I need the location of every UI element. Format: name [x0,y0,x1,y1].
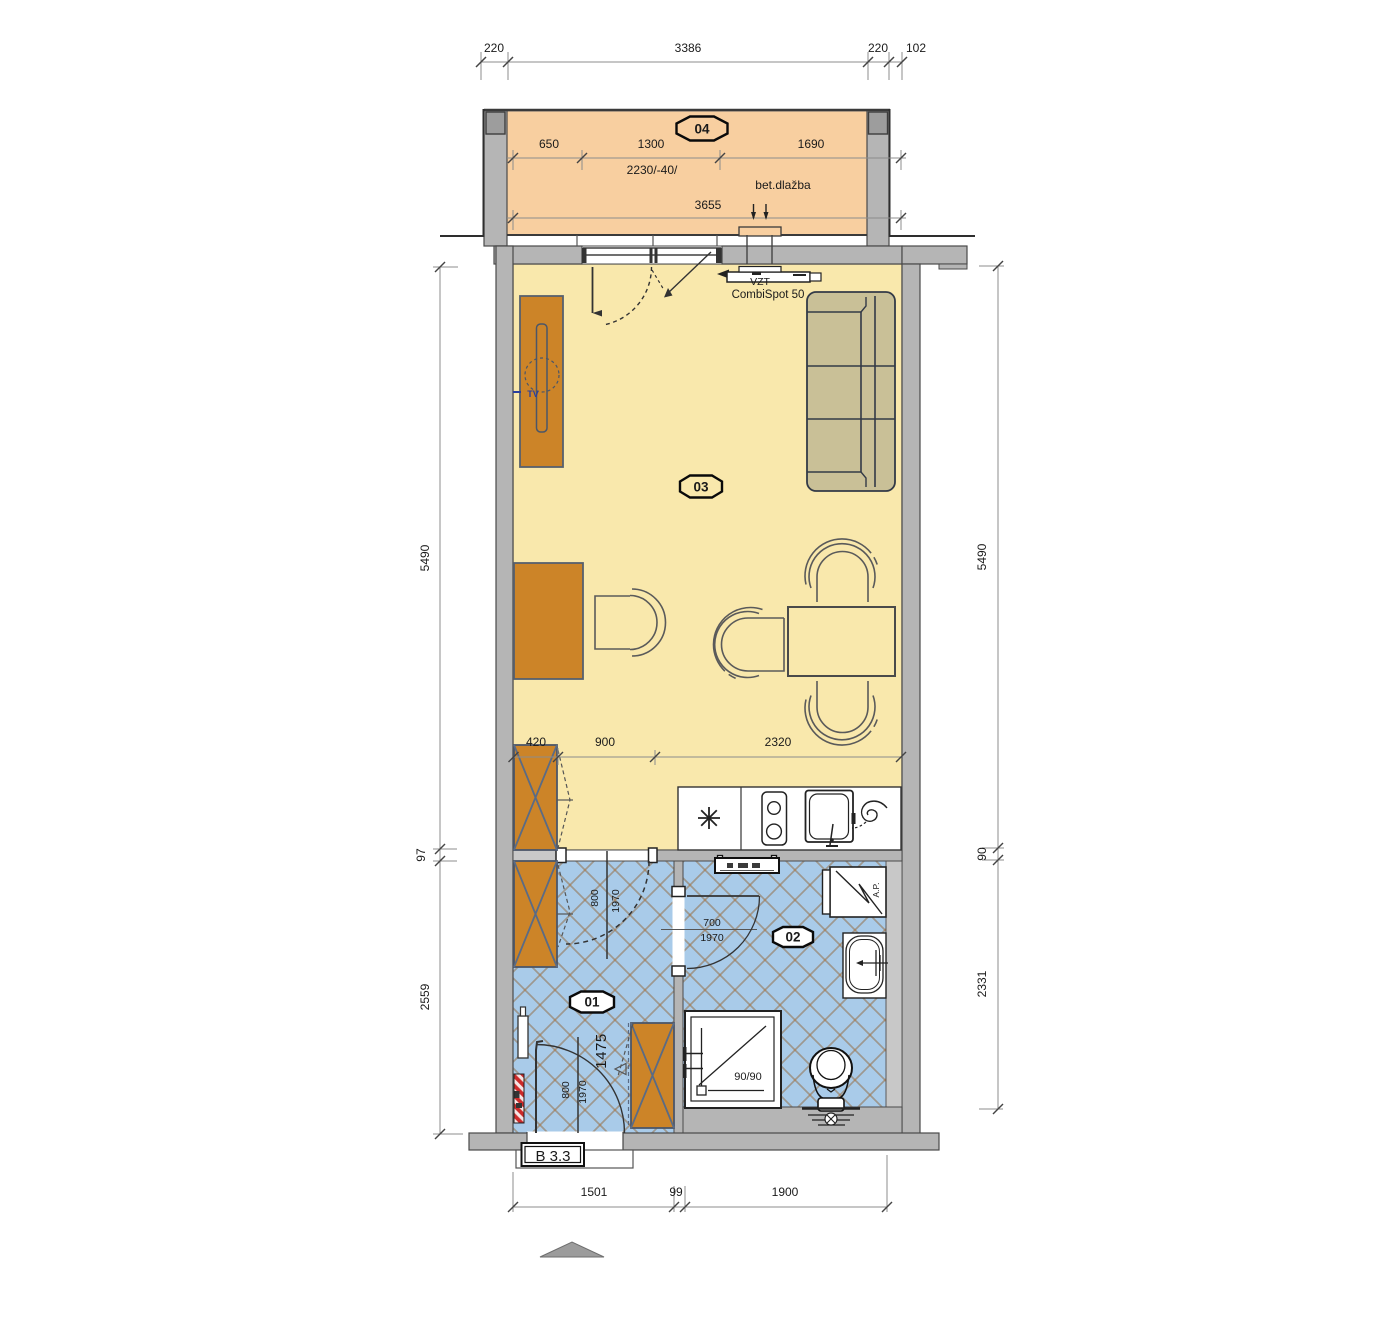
svg-text:97: 97 [414,848,428,862]
svg-text:03: 03 [693,480,709,495]
svg-text:650: 650 [539,137,559,151]
svg-text:CombiSpot 50: CombiSpot 50 [732,289,805,301]
svg-text:1300: 1300 [638,137,665,151]
svg-text:2320: 2320 [765,735,792,749]
svg-text:2559: 2559 [418,983,432,1010]
svg-text:2331: 2331 [975,970,989,997]
svg-text:90/90: 90/90 [734,1071,762,1083]
svg-text:800: 800 [560,1081,572,1099]
svg-text:1970: 1970 [610,889,622,913]
svg-text:220: 220 [868,41,888,55]
svg-text:02: 02 [785,930,800,945]
svg-text:A.P.: A.P. [871,883,881,898]
svg-text:1970: 1970 [577,1080,589,1104]
svg-text:800: 800 [589,889,601,907]
svg-text:900: 900 [595,735,615,749]
svg-text:5490: 5490 [418,544,432,571]
svg-text:700: 700 [703,917,721,929]
svg-text:90: 90 [975,847,989,861]
svg-text:01: 01 [584,995,600,1010]
svg-text:bet.dlažba: bet.dlažba [755,178,811,192]
svg-text:VZT: VZT [750,276,770,288]
svg-text:1501: 1501 [581,1185,608,1199]
svg-text:1900: 1900 [772,1185,799,1199]
svg-text:2230/-40/: 2230/-40/ [627,163,678,177]
svg-text:99: 99 [669,1185,683,1199]
svg-text:5490: 5490 [975,543,989,570]
svg-text:1475: 1475 [593,1033,610,1068]
svg-text:3386: 3386 [675,41,702,55]
svg-text:1970: 1970 [700,932,724,944]
svg-text:1690: 1690 [798,137,825,151]
svg-text:B 3.3: B 3.3 [535,1148,570,1165]
svg-text:04: 04 [694,122,710,137]
svg-text:3655: 3655 [695,198,722,212]
svg-text:420: 420 [526,735,546,749]
svg-text:220: 220 [484,41,504,55]
svg-text:TV: TV [527,389,539,399]
svg-text:102: 102 [906,41,926,55]
